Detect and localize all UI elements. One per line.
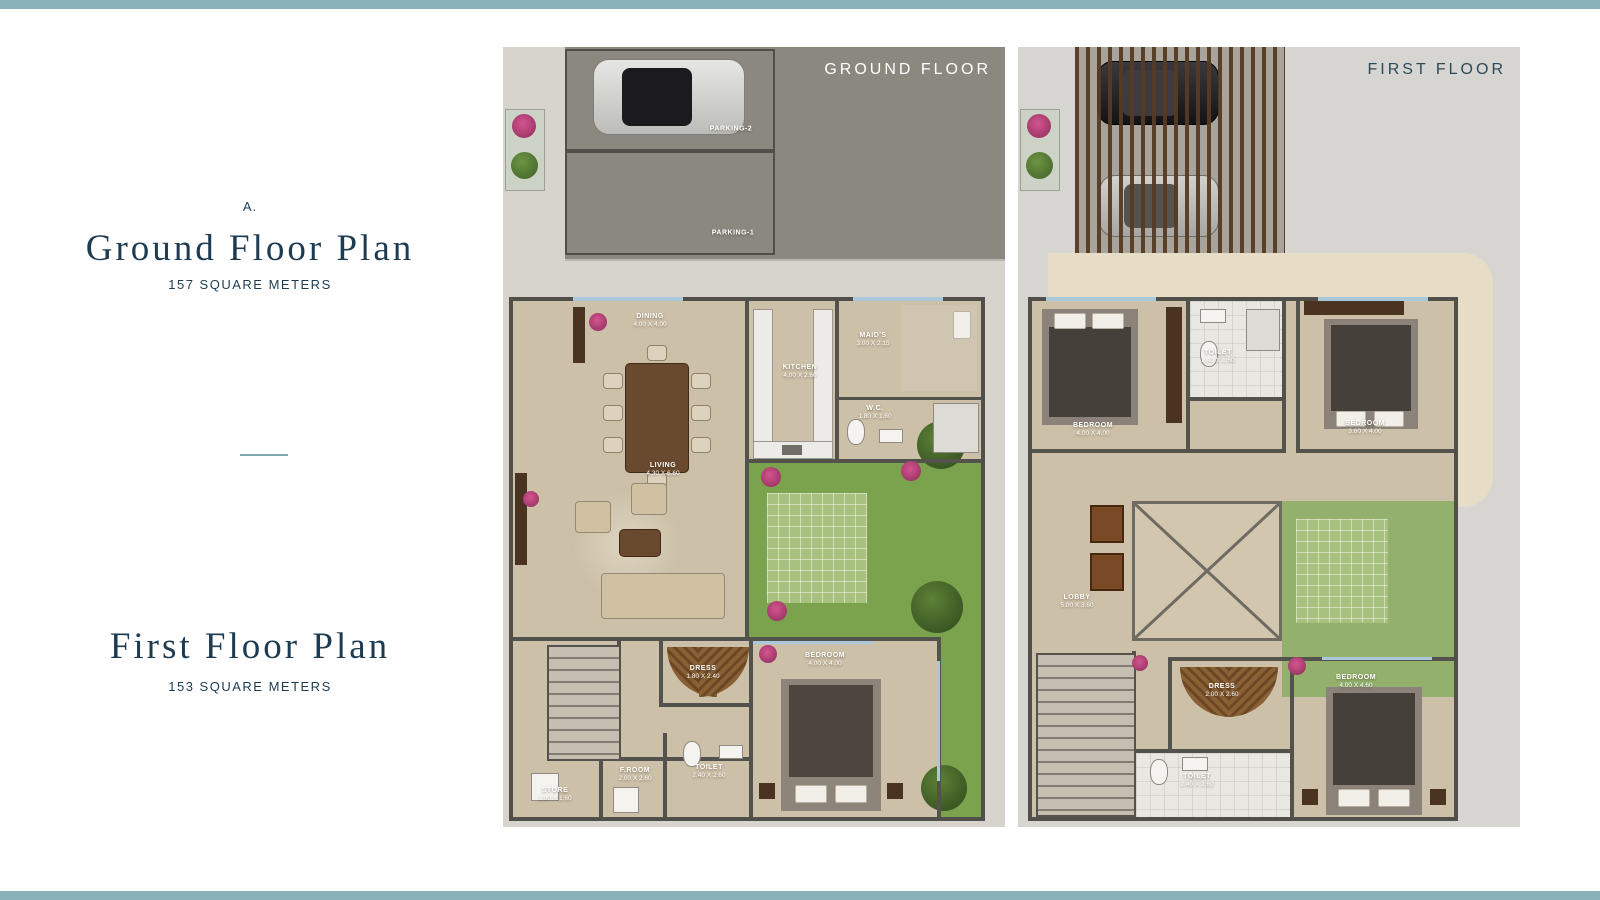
flower-bush (1132, 655, 1148, 671)
nightstand (1302, 789, 1318, 805)
bed-blanket (1331, 325, 1411, 411)
window (937, 661, 940, 781)
bed-pillow (835, 785, 867, 803)
void-cross-lines (1135, 504, 1279, 638)
flower-bush (901, 461, 921, 481)
kitchen-counter (753, 441, 833, 459)
first-floor-plan-title: First Floor Plan (30, 625, 470, 668)
bed-blanket (789, 685, 873, 777)
dining-chair (691, 437, 711, 453)
bed-blanket (1049, 327, 1131, 417)
kitchen-sink (782, 445, 802, 455)
wall (1032, 449, 1286, 453)
window (573, 297, 683, 301)
armchair (631, 483, 667, 515)
shower-tray (1246, 309, 1280, 351)
tree (911, 581, 963, 633)
sink-fixture (1182, 757, 1208, 771)
wall (659, 641, 663, 707)
store-label: STORE 1.90 X 1.60 (538, 786, 571, 804)
divider-line (240, 454, 288, 456)
toilet1-label: TOILET 2.40 X 1.60 (1201, 348, 1234, 366)
bedroom-bed (781, 679, 881, 811)
flower-bush (761, 467, 781, 487)
bedroom3-label: BEDROOM 4.00 X 4.60 (1336, 673, 1376, 691)
wall (513, 637, 753, 641)
pergola (1075, 47, 1285, 259)
wall (835, 397, 981, 400)
dining-chair (603, 437, 623, 453)
dining-chair (603, 373, 623, 389)
toilet-label: TOILET 2.40 X 2.60 (692, 763, 725, 781)
shower-tray (933, 403, 979, 453)
ground-floor-header: GROUND FLOOR (824, 61, 991, 79)
garden-patio (767, 493, 867, 603)
dress-label: DRESS 1.80 X 2.40 (686, 664, 719, 682)
wc-label: W.C. 1.80 X 1.60 (858, 404, 891, 422)
nightstand (1430, 789, 1446, 805)
dining-chair (647, 345, 667, 361)
wall (1296, 449, 1454, 453)
wardrobe (1166, 307, 1182, 423)
section-letter: A. (30, 199, 470, 214)
sink-fixture (719, 745, 743, 759)
toilet-fixture (847, 419, 865, 445)
armchair (575, 501, 611, 533)
green-bush (1026, 152, 1053, 179)
dining-chair (691, 405, 711, 421)
parking-1-label: PARKING-1 (712, 228, 754, 237)
staircase (547, 645, 621, 761)
wall (1190, 397, 1282, 401)
maids-bed (901, 305, 977, 391)
bedroom1-label: BEDROOM 4.00 X 4.00 (1073, 421, 1113, 439)
planter-box (1090, 553, 1124, 591)
wall (745, 459, 749, 641)
page: A. Ground Floor Plan 157 SQUARE METERS F… (0, 0, 1600, 900)
flower-bush (767, 601, 787, 621)
wall (599, 757, 603, 817)
dining-chair (691, 373, 711, 389)
ground-floor-plan-title: Ground Floor Plan (30, 227, 470, 270)
parking-stall-1 (565, 151, 775, 255)
bed-pillow (1338, 789, 1370, 807)
sink-fixture (879, 429, 903, 443)
dress-label: DRESS 2.00 X 2.60 (1205, 682, 1238, 700)
car-sunroof (622, 68, 692, 126)
living-label: LIVING 4.30 X 6.60 (646, 461, 679, 479)
bed-pillow (953, 311, 971, 339)
left-text-panel: A. Ground Floor Plan 157 SQUARE METERS F… (30, 47, 470, 827)
wall (835, 301, 839, 461)
planter (505, 109, 545, 191)
wall (659, 703, 753, 707)
dining-chair (603, 405, 623, 421)
flower-bush (1288, 657, 1306, 675)
wall (1168, 657, 1172, 753)
ground-floor-area: 157 SQUARE METERS (30, 277, 470, 292)
tree (921, 765, 967, 811)
wall (749, 641, 753, 817)
green-bush (511, 152, 538, 179)
bedroom-bed (1324, 319, 1418, 429)
double-height-void (1132, 501, 1282, 641)
bed-blanket (1333, 693, 1415, 785)
bedroom-bed (1042, 309, 1138, 425)
bedroom-label: BEDROOM 4.00 X 4.00 (805, 651, 845, 669)
first-floor-plan-image: FIRST FLOOR (1018, 47, 1520, 827)
laundry-machine (613, 787, 639, 813)
wardrobe (1304, 301, 1404, 315)
staircase (1036, 653, 1136, 817)
flower-bush (512, 114, 536, 138)
bedroom-bed (1326, 687, 1422, 815)
wall (745, 459, 981, 463)
bedroom2-label: BEDROOM 3.60 X 4.00 (1345, 419, 1385, 437)
bed-pillow (1378, 789, 1410, 807)
bottom-accent-bar (0, 891, 1600, 900)
first-floor-area: 153 SQUARE METERS (30, 679, 470, 694)
nightstand (887, 783, 903, 799)
sideboard (573, 307, 585, 363)
kitchen-label: KITCHEN 4.00 X 2.60 (783, 363, 818, 381)
parking-2-label: PARKING-2 (710, 124, 752, 133)
terrace-slab (1048, 253, 1493, 299)
flower-bush (523, 491, 539, 507)
house-plot: DINING 4.00 X 4.00 KITCHEN 4.00 X 2.60 M… (509, 297, 985, 821)
planter (1020, 109, 1060, 191)
dining-table (625, 363, 689, 473)
window (1046, 297, 1156, 301)
lobby-label: LOBBY 5.00 X 3.60 (1060, 593, 1093, 611)
toilet2-label: TOILET 2.40 X 2.60 (1180, 772, 1213, 790)
sofa (601, 573, 725, 619)
toilet-fixture (1150, 759, 1168, 785)
wall (745, 301, 749, 461)
wall (663, 733, 667, 817)
coffee-table (619, 529, 661, 557)
first-floor-header: FIRST FLOOR (1368, 61, 1507, 79)
top-accent-bar (0, 0, 1600, 9)
flower-bush (1027, 114, 1051, 138)
maids-label: MAID'S 3.00 X 2.15 (856, 331, 889, 349)
nightstand (759, 783, 775, 799)
wall (1290, 657, 1294, 817)
wall (1282, 301, 1286, 449)
froom-label: F.ROOM 2.00 X 2.60 (618, 766, 651, 784)
bed-pillow (795, 785, 827, 803)
kitchen-counter (753, 309, 773, 443)
driveway (565, 47, 1005, 261)
house-plot: BEDROOM 4.00 X 4.00 TOILET 2.40 X 1.60 B… (1028, 297, 1458, 821)
window (1322, 657, 1432, 660)
flower-bush (759, 645, 777, 663)
bed-pillow (1054, 313, 1086, 329)
bed-pillow (1092, 313, 1124, 329)
tv-cabinet (515, 473, 527, 565)
garden-patio (1296, 519, 1388, 623)
sink-fixture (1200, 309, 1226, 323)
flower-bush (589, 313, 607, 331)
garden (1282, 501, 1454, 697)
window (853, 297, 943, 301)
wall (1296, 301, 1300, 449)
pergola-slats (1075, 47, 1285, 259)
window (753, 641, 873, 644)
planter-box (1090, 505, 1124, 543)
ground-floor-plan-image: PARKING-2 PARKING-1 GROUND FLOOR (503, 47, 1005, 827)
dining-label: DINING 4.00 X 4.00 (633, 312, 666, 330)
